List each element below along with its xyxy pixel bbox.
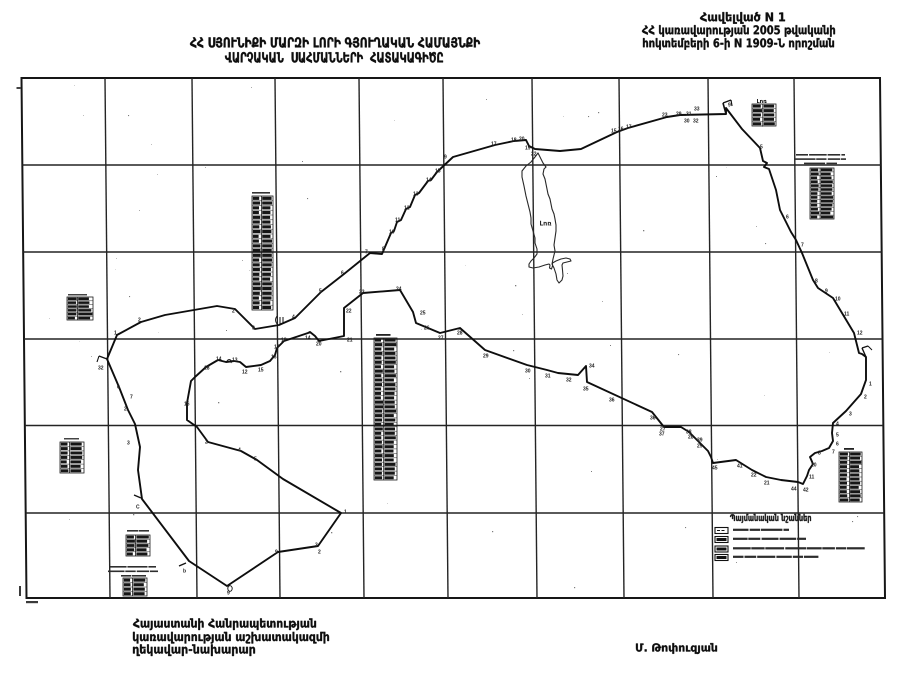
svg-text:29: 29 (697, 444, 703, 450)
svg-text:9: 9 (275, 550, 278, 556)
svg-text:11: 11 (395, 218, 401, 224)
svg-text:12: 12 (404, 206, 410, 212)
svg-text:4: 4 (238, 448, 241, 454)
svg-text:3: 3 (127, 441, 130, 447)
svg-text:18: 18 (204, 366, 210, 372)
svg-text:16: 16 (271, 355, 277, 361)
svg-text:20: 20 (519, 137, 525, 143)
svg-text:42: 42 (803, 488, 809, 494)
svg-text:31: 31 (545, 374, 551, 380)
svg-text:11: 11 (809, 475, 815, 481)
svg-text:18: 18 (281, 338, 287, 344)
svg-text:2: 2 (232, 309, 235, 315)
svg-text:17: 17 (274, 345, 280, 351)
svg-text:35: 35 (583, 387, 589, 393)
svg-text:18: 18 (511, 138, 517, 144)
svg-text:33: 33 (694, 107, 700, 113)
svg-text:23: 23 (662, 113, 668, 119)
svg-text:3: 3 (315, 543, 318, 549)
svg-text:2: 2 (318, 550, 321, 556)
svg-text:8: 8 (818, 451, 821, 457)
svg-text:16: 16 (618, 127, 624, 133)
svg-text:7: 7 (130, 395, 133, 401)
svg-text:C: C (136, 505, 140, 511)
svg-text:38: 38 (686, 430, 692, 436)
svg-text:22: 22 (751, 473, 757, 479)
svg-text:12: 12 (857, 331, 863, 337)
svg-text:14: 14 (305, 336, 311, 342)
svg-text:15: 15 (435, 169, 441, 175)
svg-text:23: 23 (359, 290, 365, 296)
svg-text:39: 39 (697, 438, 703, 444)
svg-text:b: b (183, 569, 186, 575)
svg-text:32: 32 (566, 378, 572, 384)
svg-text:29: 29 (483, 354, 489, 360)
svg-text:7: 7 (832, 450, 835, 456)
svg-text:15: 15 (611, 129, 617, 135)
svg-text:44: 44 (791, 487, 797, 493)
svg-text:7: 7 (365, 250, 368, 256)
svg-text:34: 34 (589, 364, 595, 370)
svg-text:36: 36 (650, 416, 656, 422)
svg-text:36: 36 (609, 398, 615, 404)
svg-text:28: 28 (457, 331, 463, 337)
svg-text:24: 24 (396, 287, 402, 293)
svg-text:2: 2 (138, 318, 141, 324)
svg-text:9: 9 (444, 155, 447, 161)
svg-text:32: 32 (98, 366, 104, 372)
svg-text:19: 19 (525, 146, 531, 152)
svg-text:4: 4 (292, 315, 295, 321)
svg-text:26: 26 (424, 326, 430, 332)
svg-text:17: 17 (491, 142, 497, 148)
svg-text:10: 10 (389, 230, 395, 236)
svg-text:45: 45 (712, 466, 718, 472)
svg-text:32: 32 (693, 119, 699, 125)
svg-text:5: 5 (319, 289, 322, 295)
svg-text:6: 6 (117, 385, 120, 391)
svg-text:5: 5 (760, 145, 763, 151)
svg-text:1: 1 (114, 331, 117, 337)
svg-text:14: 14 (216, 357, 222, 363)
svg-text:3: 3 (252, 326, 255, 332)
svg-text:8: 8 (815, 279, 818, 285)
svg-text:17: 17 (626, 125, 632, 131)
svg-text:12: 12 (242, 370, 248, 376)
svg-text:5: 5 (836, 433, 839, 439)
svg-text:4: 4 (836, 422, 839, 428)
svg-text:3: 3 (849, 412, 852, 418)
svg-text:31: 31 (686, 112, 692, 118)
svg-text:22: 22 (346, 309, 352, 315)
svg-text:9: 9 (728, 103, 731, 109)
svg-text:7: 7 (801, 243, 804, 249)
svg-text:10: 10 (811, 463, 817, 469)
svg-text:21: 21 (347, 338, 353, 344)
svg-text:6: 6 (786, 215, 789, 221)
svg-text:27: 27 (438, 336, 444, 342)
svg-text:27: 27 (660, 427, 666, 433)
svg-text:2: 2 (205, 440, 208, 446)
svg-text:29: 29 (676, 112, 682, 118)
svg-text:1: 1 (344, 510, 347, 516)
svg-text:30: 30 (684, 119, 690, 125)
svg-text:10: 10 (835, 297, 841, 303)
svg-text:8: 8 (382, 247, 385, 253)
svg-text:2: 2 (124, 407, 127, 413)
svg-text:30: 30 (525, 369, 531, 375)
svg-text:21: 21 (764, 481, 770, 487)
svg-text:5: 5 (254, 457, 257, 463)
svg-text:13: 13 (232, 358, 238, 364)
svg-text:14: 14 (426, 178, 432, 184)
svg-text:6: 6 (836, 442, 839, 448)
svg-text:6: 6 (341, 271, 344, 277)
svg-text:11: 11 (844, 312, 850, 318)
svg-text:41: 41 (737, 464, 743, 470)
svg-text:20: 20 (316, 342, 322, 348)
svg-text:22: 22 (531, 152, 537, 158)
svg-text:15: 15 (258, 368, 264, 374)
svg-text:9: 9 (227, 591, 230, 597)
svg-text:9: 9 (825, 289, 828, 295)
svg-text:2: 2 (864, 395, 867, 401)
svg-text:16: 16 (184, 402, 190, 408)
svg-text:1: 1 (869, 382, 872, 388)
svg-text:25: 25 (420, 311, 426, 317)
svg-text:13: 13 (413, 192, 419, 198)
